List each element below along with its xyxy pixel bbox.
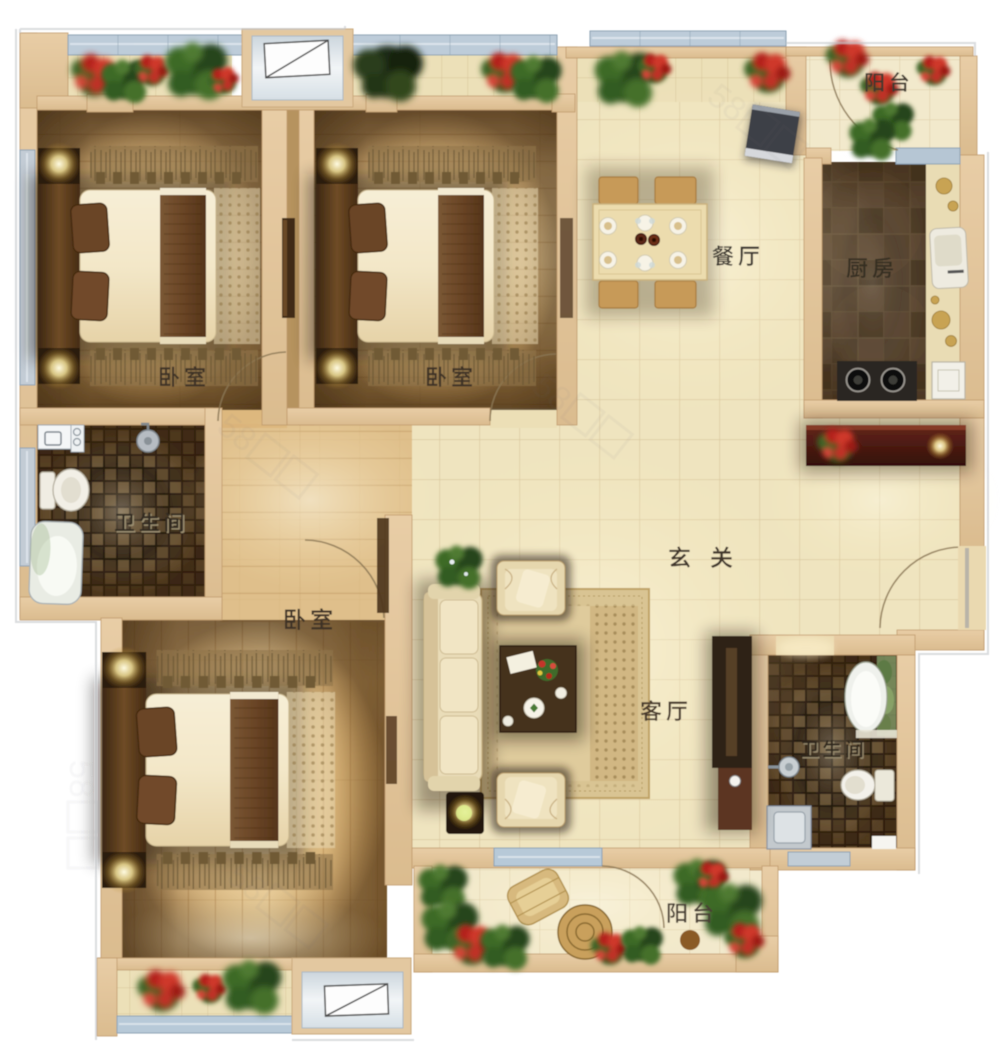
svg-text:58: 58 [62, 760, 100, 798]
